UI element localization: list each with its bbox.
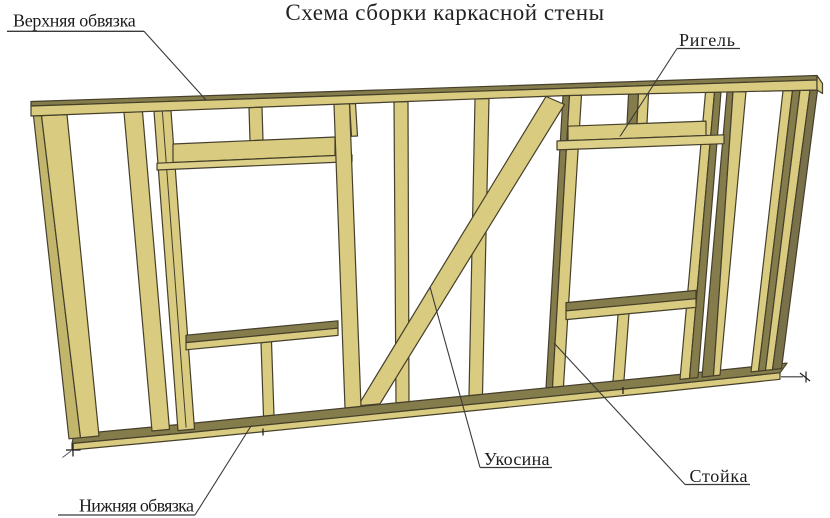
svg-text:Нижняя обвязка: Нижняя обвязка <box>79 496 194 516</box>
svg-text:Стойка: Стойка <box>690 466 749 486</box>
svg-text:Схема сборки каркасной стены: Схема сборки каркасной стены <box>285 0 604 25</box>
svg-text:Укосина: Укосина <box>484 449 550 469</box>
svg-text:Верхняя обвязка: Верхняя обвязка <box>13 11 136 31</box>
svg-text:Ригель: Ригель <box>679 30 736 50</box>
